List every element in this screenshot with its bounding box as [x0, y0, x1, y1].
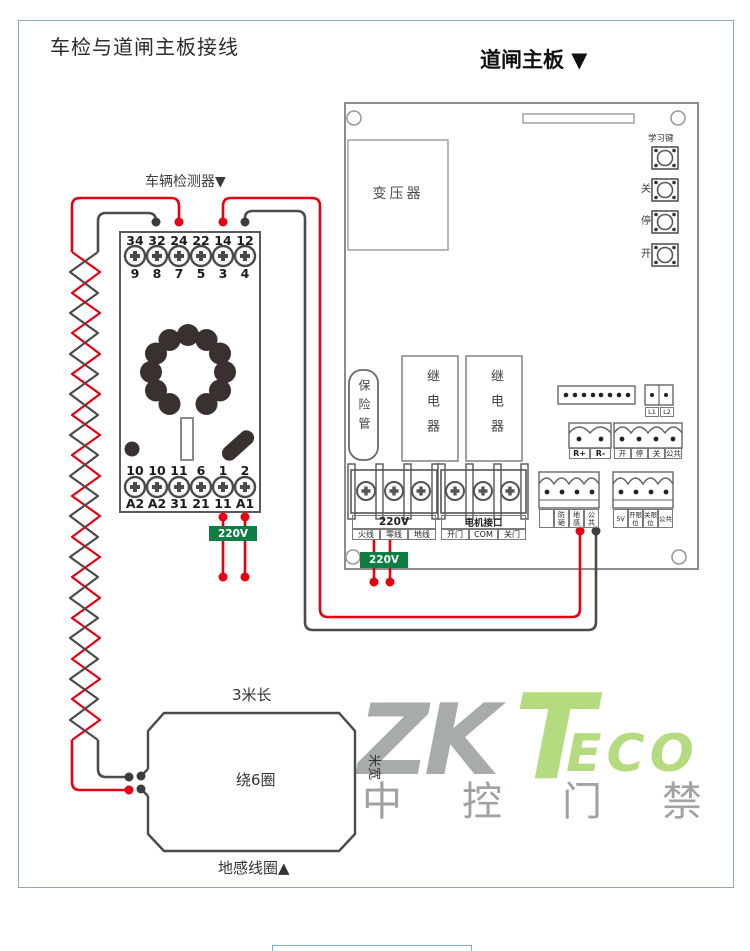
sensor-cell-common: 公共	[584, 509, 599, 528]
limit-cell-common: 公共	[658, 509, 673, 528]
relay-left-label: 继电器	[422, 369, 441, 444]
det-top-num: 34	[123, 233, 147, 248]
power-cell-live: 火线	[352, 529, 380, 540]
det-bot-num: 2	[233, 463, 257, 478]
coil-turns-label: 绕6圈	[236, 772, 276, 789]
det-bot-num: 1	[211, 463, 235, 478]
limit-terminal-block	[613, 472, 673, 508]
det-top-pin: 5	[189, 266, 213, 281]
relay-right-label: 继电器	[486, 369, 505, 444]
sensor-cell-antismash: 防砸	[554, 509, 569, 528]
det-bot-pin: 31	[167, 496, 191, 511]
motor-cell-com: COM	[469, 529, 498, 540]
l1l2-block	[645, 385, 673, 405]
sensor-terminal-block	[539, 472, 599, 508]
rs485-block	[569, 423, 611, 448]
sensor-cell-blank	[539, 509, 554, 528]
cmd-close-label: 关	[648, 448, 665, 459]
detector-power-tag: 220V	[209, 526, 257, 541]
det-bot-num: 10	[145, 463, 169, 478]
det-bot-num: 11	[167, 463, 191, 478]
det-bot-pin: A1	[233, 496, 257, 511]
limit-cell-open: 开限位	[628, 509, 643, 528]
r-minus-label: R-	[590, 448, 611, 459]
diagram-linework	[0, 0, 750, 951]
next-panel-edge	[272, 945, 472, 951]
stop-button-label: 停	[641, 216, 651, 228]
det-top-num: 24	[167, 233, 191, 248]
det-bot-num: 10	[123, 463, 147, 478]
det-top-num: 32	[145, 233, 169, 248]
det-top-pin: 3	[211, 266, 235, 281]
det-top-pin: 9	[123, 266, 147, 281]
motor-cell-close: 关门	[498, 529, 526, 540]
det-bot-pin: 11	[211, 496, 235, 511]
power-cell-ground: 地线	[408, 529, 436, 540]
socket-slot	[181, 418, 193, 460]
power-cell-neutral: 零线	[380, 529, 408, 540]
motor-terminal-title: 电机接口	[441, 515, 526, 529]
motor-cell-open: 开门	[441, 529, 469, 540]
page-title: 车检与道闸主板接线	[50, 36, 239, 59]
cmd-stop-label: 停	[631, 448, 648, 459]
board-header: 道闸主板 ▼	[480, 48, 587, 72]
wiring-diagram-screen: ZK T ECO 中控门禁	[0, 0, 750, 951]
det-top-pin: 4	[233, 266, 257, 281]
detector-label: 车辆检测器▼	[145, 174, 226, 190]
coil-width-label: 米宽	[365, 754, 380, 780]
limit-cell-5v: 5V	[613, 509, 628, 528]
det-top-num: 14	[211, 233, 235, 248]
l1-label: L1	[645, 407, 659, 417]
det-bot-pin: A2	[145, 496, 169, 511]
cmd-common-label: 公共	[665, 448, 682, 459]
cmd-open-label: 开	[614, 448, 631, 459]
det-top-pin: 7	[167, 266, 191, 281]
sensor-cell-loop: 地感	[569, 509, 584, 528]
pin-header	[558, 386, 635, 404]
fuse-label: 保险管	[356, 379, 373, 436]
coil-name-label: 地感线圈▲	[218, 860, 290, 877]
power-terminal-title: 220V	[352, 515, 436, 529]
det-bot-pin: A2	[123, 496, 147, 511]
board-power-tag: 220V	[360, 552, 408, 568]
open-stop-close-block	[614, 423, 682, 448]
det-top-num: 22	[189, 233, 213, 248]
limit-cell-close: 关限位	[643, 509, 658, 528]
det-top-pin: 8	[145, 266, 169, 281]
coil-length-label: 3米长	[232, 687, 272, 704]
det-bot-pin: 21	[189, 496, 213, 511]
det-bot-num: 6	[189, 463, 213, 478]
learn-button-label: 学习键	[648, 135, 674, 145]
l2-label: L2	[660, 407, 674, 417]
close-button-label: 关	[641, 184, 651, 196]
det-top-num: 12	[233, 233, 257, 248]
transformer-label: 变压器	[348, 186, 448, 202]
r-plus-label: R+	[569, 448, 590, 459]
open-button-label: 开	[641, 249, 651, 261]
